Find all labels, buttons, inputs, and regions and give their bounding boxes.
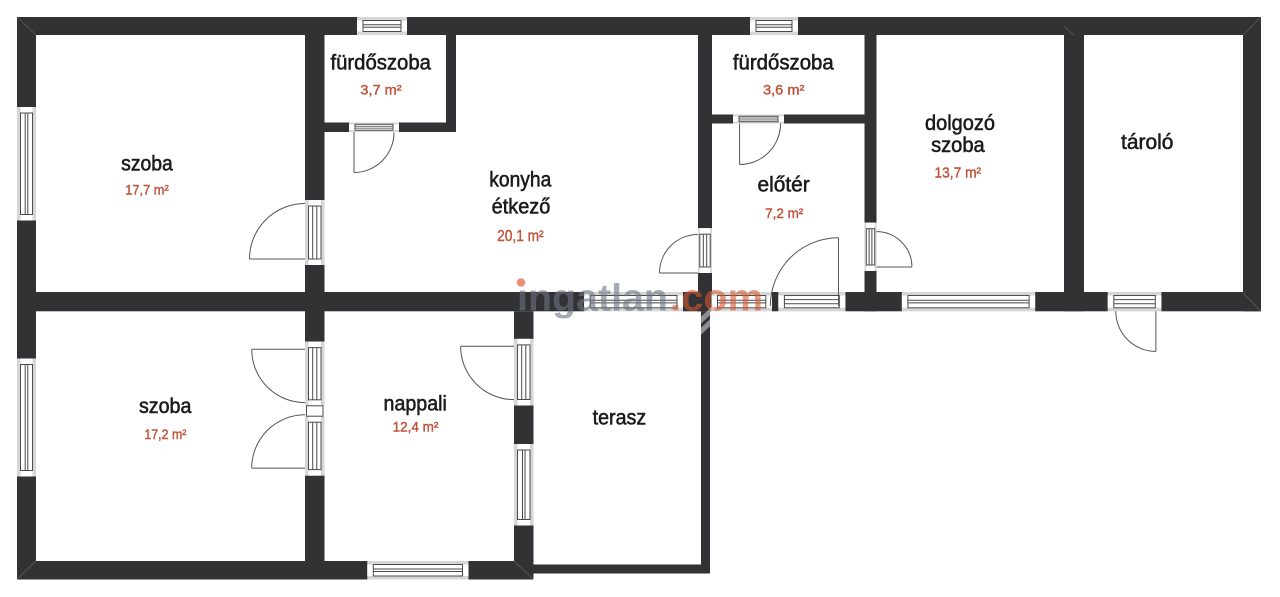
svg-text:étkező: étkező	[492, 195, 551, 218]
svg-text:fürdőszoba: fürdőszoba	[330, 52, 431, 75]
svg-text:szoba: szoba	[931, 134, 985, 157]
svg-text:3,7 m²: 3,7 m²	[360, 81, 401, 97]
svg-text:13,7 m²: 13,7 m²	[934, 166, 981, 182]
svg-text:terasz: terasz	[593, 406, 647, 429]
svg-text:szoba: szoba	[139, 395, 192, 418]
svg-text:konyha: konyha	[489, 169, 551, 192]
svg-text:dolgozó: dolgozó	[925, 112, 995, 135]
svg-text:20,1 m²: 20,1 m²	[497, 228, 544, 245]
svg-text:17,7 m²: 17,7 m²	[125, 181, 169, 197]
svg-text:fürdőszoba: fürdőszoba	[733, 52, 834, 75]
svg-text:előtér: előtér	[758, 174, 810, 197]
svg-text:szoba: szoba	[121, 153, 173, 176]
svg-text:nappali: nappali	[384, 393, 447, 416]
svg-text:17,2 m²: 17,2 m²	[144, 426, 186, 442]
svg-text:.com: .com	[670, 277, 763, 319]
svg-text:7,2 m²: 7,2 m²	[765, 205, 804, 221]
svg-text:3,6 m²: 3,6 m²	[763, 81, 805, 97]
svg-text:ıngatlan: ıngatlan	[517, 277, 668, 319]
svg-text:12,4 m²: 12,4 m²	[393, 419, 439, 435]
svg-text:tároló: tároló	[1121, 131, 1173, 154]
